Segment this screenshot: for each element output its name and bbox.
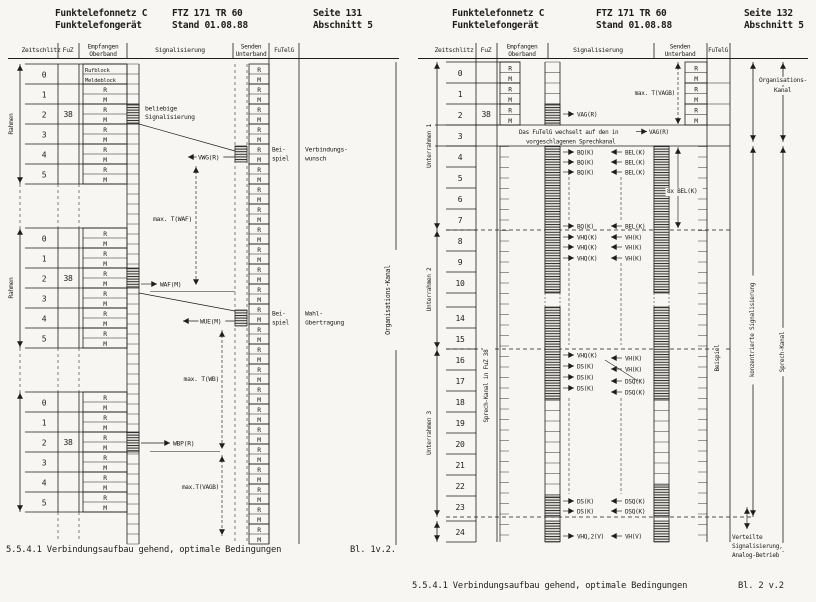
text-label: M	[257, 96, 261, 104]
timeslot-number: 15	[455, 335, 465, 344]
text-label: R	[508, 65, 512, 73]
arrowhead-icon	[675, 222, 681, 228]
timeslot-number: 0	[42, 399, 47, 408]
figure-caption: 5.5.4.1 Verbindungsaufbau gehend, optima…	[412, 581, 687, 591]
arrowhead-icon	[219, 529, 225, 535]
text-label: FuZ	[63, 46, 74, 54]
timeslot-number: 4	[42, 315, 47, 324]
text-label: M	[257, 316, 261, 324]
signal-label: VH(K)	[625, 234, 642, 241]
channel-label: Organisations-	[759, 77, 807, 84]
vag-block	[545, 104, 560, 125]
text-label: Verbindungs-	[305, 146, 348, 154]
page-number: Seite 132	[744, 8, 804, 20]
text-label: R	[103, 394, 107, 402]
text-label: M	[103, 96, 107, 104]
timeslot-number: 5	[42, 171, 47, 180]
arrowhead-icon	[750, 147, 756, 153]
signal-label: VHQ(K)	[577, 244, 597, 251]
signal-block	[545, 146, 560, 293]
text-label: R	[103, 146, 107, 154]
arrowhead-icon	[568, 508, 574, 514]
arrowhead-icon	[193, 279, 199, 285]
signal-label: VAG(R)	[577, 111, 597, 118]
timeslot-number: 3	[42, 295, 47, 304]
signal-label: VHQ(K)	[577, 255, 597, 262]
signal-label: BEL(K)	[625, 149, 645, 156]
arrowhead-icon	[434, 535, 440, 541]
text-label: M	[257, 196, 261, 204]
text-label: M	[257, 116, 261, 124]
signal-label: BQ(K)	[577, 169, 594, 176]
text-label: R	[103, 166, 107, 174]
timeslot-number: 18	[455, 398, 465, 407]
text-label: R	[257, 286, 261, 294]
text-label: R	[257, 246, 261, 254]
text-label: M	[508, 117, 512, 125]
signal-label-wbp: WBP(R)	[173, 440, 194, 448]
arrowhead-icon	[675, 63, 681, 69]
text-label: R	[103, 126, 107, 134]
timeslot-number: 22	[455, 482, 465, 491]
timing-diagram-page-132: ZeitschlitzFuZEmpfangenOberbandSignalisi…	[408, 0, 816, 602]
text-label: M	[257, 396, 261, 404]
text-label: spiel	[272, 156, 289, 163]
subframe-label: Unterrahmen 3	[426, 410, 433, 454]
text-label: R	[257, 206, 261, 214]
arrowhead-icon	[183, 318, 189, 324]
text-label: R	[257, 326, 261, 334]
timeslot-number: 1	[458, 90, 463, 99]
text-label: M	[103, 136, 107, 144]
timeslot-number: 20	[455, 440, 465, 449]
signal-block	[654, 146, 669, 293]
text-label: M	[257, 276, 261, 284]
text-label: Empfangen	[507, 44, 538, 51]
arrowhead-icon	[744, 508, 750, 514]
document-title: Funktelefonnetz CFunktelefongerät	[55, 8, 147, 31]
signal-label: DSQ(K)	[625, 498, 645, 505]
panel-page-132: ZeitschlitzFuZEmpfangenOberbandSignalisi…	[408, 0, 816, 602]
text-label: Senden	[241, 44, 262, 51]
arrowhead-icon	[17, 393, 23, 399]
text-label: M	[103, 404, 107, 412]
signal-label: VH(K)	[625, 366, 642, 373]
arrowhead-icon	[750, 135, 756, 141]
text-label: R	[257, 146, 261, 154]
signal-block	[545, 521, 560, 542]
arrowhead-icon	[750, 63, 756, 69]
text-label: M	[103, 240, 107, 248]
arrowhead-icon	[568, 533, 574, 539]
frame-label: Rahmen	[8, 113, 15, 134]
timeslot-number: 1	[42, 255, 47, 264]
arrowhead-icon	[675, 148, 681, 154]
text-label: R	[103, 494, 107, 502]
panel-page-131: ZeitschlitzFuZEmpfangenOberbandSignalisi…	[0, 0, 408, 602]
document-title: Funktelefonnetz CFunktelefongerät	[452, 8, 544, 31]
signal-label: VH(K)	[625, 244, 642, 251]
example-label: Beispiel	[714, 344, 721, 372]
timeslot-number: 3	[42, 459, 47, 468]
text-label: Signalisierung	[155, 46, 205, 54]
text-label: R	[257, 66, 261, 74]
channel-label: Organisations-Kanal	[384, 265, 392, 335]
arrowhead-icon	[17, 341, 23, 347]
text-label: Bei-	[272, 147, 285, 154]
distributed-signalling-label: Analog-Betrieb	[732, 552, 780, 559]
arrowhead-icon	[750, 510, 756, 516]
text-label: M	[103, 504, 107, 512]
text-label: M	[257, 356, 261, 364]
timeslot-number: 3	[458, 132, 463, 141]
text-label: R	[103, 310, 107, 318]
text-label: M	[103, 464, 107, 472]
text-label: M	[257, 516, 261, 524]
repeat-count-label: 8x BEL(K)	[667, 188, 697, 195]
text-label: M	[103, 484, 107, 492]
timing-diagram-page-131: ZeitschlitzFuZEmpfangenOberbandSignalisi…	[0, 0, 408, 602]
text-label: M	[694, 117, 698, 125]
distributed-signalling-label: Signalisierung,	[732, 543, 783, 550]
text-label: Signalisierung	[573, 46, 623, 54]
text-label: M	[257, 256, 261, 264]
timer-label: max. T(WB)	[184, 375, 219, 383]
text-label: FuTelG	[708, 47, 729, 54]
text-label: R	[694, 107, 698, 115]
spec-reference: FTZ 171 TR 60Stand 01.08.88	[172, 8, 248, 31]
message-block-label: Meldeblock	[85, 78, 117, 84]
timeslot-number: 10	[455, 279, 465, 288]
text-label: M	[257, 76, 261, 84]
text-label: R	[257, 426, 261, 434]
timeslot-number: 2	[42, 275, 47, 284]
arrowhead-icon	[434, 223, 440, 229]
figure-caption: 5.5.4.1 Verbindungsaufbau gehend, optima…	[6, 545, 281, 555]
text-label: M	[103, 176, 107, 184]
text-label: M	[103, 444, 107, 452]
signal-label-wue: WUE(M)	[200, 318, 221, 326]
signal-label: DS(K)	[577, 498, 594, 505]
arrowhead-icon	[568, 111, 574, 117]
waf-block	[127, 268, 139, 288]
timeslot-number: 7	[458, 216, 463, 225]
timeslot-number: 4	[42, 151, 47, 160]
device-name: Funktelefongerät	[452, 20, 544, 32]
text-label: M	[103, 320, 107, 328]
text-label: beliebige	[145, 105, 177, 113]
call-block-label: Rufblock	[85, 68, 110, 74]
text-label: M	[257, 456, 261, 464]
arrowhead-icon	[434, 63, 440, 69]
spec-date: Stand 01.08.88	[172, 20, 248, 32]
signal-label: VHQ,2(V)	[577, 533, 604, 540]
signal-label: DS(K)	[577, 508, 594, 515]
arrowhead-icon	[434, 231, 440, 237]
text-label: Oberband	[89, 51, 117, 58]
text-label: R	[257, 186, 261, 194]
timeslot-number: 1	[42, 419, 47, 428]
timeslot-number: 4	[458, 153, 463, 162]
page-reference: Seite 131Abschnitt 5	[313, 8, 373, 31]
arrowhead-icon	[780, 135, 786, 141]
arrowhead-icon	[434, 522, 440, 528]
signal-label: VHQ(K)	[577, 352, 597, 359]
text-label: M	[257, 156, 261, 164]
text-label: M	[103, 260, 107, 268]
timeslot-number: 21	[455, 461, 465, 470]
signal-label: BQ(K)	[577, 223, 594, 230]
subframe-label: Unterrahmen 1	[426, 123, 433, 167]
timeslot-number: 3	[42, 131, 47, 140]
text-label: M	[257, 476, 261, 484]
arrowhead-icon	[151, 281, 157, 287]
text-label: R	[257, 266, 261, 274]
text-label: R	[257, 106, 261, 114]
text-label: Senden	[670, 44, 691, 51]
text-label: R	[257, 526, 261, 534]
text-label: M	[257, 296, 261, 304]
arrowhead-icon	[568, 149, 574, 155]
timeslot-number: 5	[458, 174, 463, 183]
arrowhead-icon	[568, 352, 574, 358]
text-label: R	[694, 86, 698, 94]
distributed-signalling-label: Verteilte	[732, 534, 763, 541]
arrowhead-icon	[568, 363, 574, 369]
text-label: Wahl-	[305, 310, 323, 318]
text-label: R	[103, 474, 107, 482]
spec-number: FTZ 171 TR 60	[596, 8, 672, 20]
arrowhead-icon	[568, 255, 574, 261]
arrowhead-icon	[568, 244, 574, 250]
signal-block	[654, 307, 669, 400]
timeslot-number: 19	[455, 419, 465, 428]
text-label: Signalisierung	[145, 113, 195, 121]
text-label: R	[103, 106, 107, 114]
signal-block	[545, 307, 560, 400]
timer-label: max. T(WAF)	[153, 215, 192, 223]
timeslot-number: 2	[42, 439, 47, 448]
text-label: Zeitschlitz	[21, 46, 60, 54]
text-label: R	[257, 466, 261, 474]
signal-label: BEL(K)	[625, 159, 645, 166]
text-label: Oberband	[508, 51, 536, 58]
text-label: M	[508, 75, 512, 83]
text-label: M	[257, 176, 261, 184]
timeslot-number: 4	[42, 479, 47, 488]
arrowhead-icon	[219, 331, 225, 337]
wue-block	[235, 310, 247, 326]
fuz-channel-number: 38	[481, 110, 491, 119]
signal-label: DSQ(K)	[625, 508, 645, 515]
signal-label: VH(V)	[625, 533, 642, 540]
text-label: R	[257, 506, 261, 514]
handover-note: Das FuTelG wechselt auf den in	[519, 129, 619, 136]
text-label: M	[257, 136, 261, 144]
signal-block	[654, 485, 669, 517]
text-label: R	[257, 306, 261, 314]
signal-label: VH(K)	[625, 355, 642, 362]
text-label: R	[257, 346, 261, 354]
text-label: M	[257, 496, 261, 504]
text-label: M	[103, 424, 107, 432]
fuz-channel-number: 38	[63, 110, 73, 119]
timeslot-number: 8	[458, 237, 463, 246]
fuz-channel-number: 38	[63, 274, 73, 283]
signal-label: BQ(K)	[577, 159, 594, 166]
channel-label: Sprech-Kanal	[779, 331, 786, 372]
text-label: M	[257, 216, 261, 224]
channel-label: konzentrierte Signalisierung	[749, 282, 756, 377]
text-label: M	[694, 96, 698, 104]
relation-line	[139, 293, 235, 311]
timer-label: max. T(VAGB)	[635, 90, 675, 97]
arrowhead-icon	[17, 229, 23, 235]
text-label: R	[103, 414, 107, 422]
arrowhead-icon	[17, 177, 23, 183]
arrowhead-icon	[568, 159, 574, 165]
text-label: M	[257, 336, 261, 344]
arrowhead-icon	[193, 167, 199, 173]
network-name: Funktelefonnetz C	[452, 8, 544, 20]
arrowhead-icon	[780, 147, 786, 153]
arrowhead-icon	[568, 385, 574, 391]
signal-label-vwg: VWG(R)	[198, 154, 219, 162]
relation-line	[139, 124, 235, 151]
sheet-label: Bl. 1v.2.	[350, 545, 396, 555]
page-number: Seite 131	[313, 8, 373, 20]
arrowhead-icon	[164, 440, 170, 446]
text-label: wunsch	[305, 155, 327, 163]
arrowhead-icon	[219, 443, 225, 449]
signal-label: DS(K)	[577, 374, 594, 381]
text-label: M	[103, 156, 107, 164]
text-label: Zeitschlitz	[434, 46, 473, 54]
timeslot-number: 0	[458, 69, 463, 78]
text-label: R	[257, 126, 261, 134]
arrowhead-icon	[568, 169, 574, 175]
text-label: M	[257, 376, 261, 384]
text-label: R	[103, 454, 107, 462]
signal-label: DS(K)	[577, 385, 594, 392]
text-label: M	[103, 280, 107, 288]
text-label: R	[257, 366, 261, 374]
text-label: FuTelG	[274, 47, 295, 54]
speech-channel-note: Sprech-Kanal in FuZ 38	[483, 349, 490, 423]
frame-label: Rahmen	[8, 277, 15, 298]
arrowhead-icon	[744, 523, 750, 529]
text-label: R	[257, 446, 261, 454]
signal-label: DSQ(K)	[625, 389, 645, 396]
text-label: Bei-	[272, 311, 285, 318]
arrowhead-icon	[675, 118, 681, 124]
text-label: M	[257, 236, 261, 244]
text-label: R	[508, 86, 512, 94]
vwg-block	[235, 146, 247, 162]
timeslot-number: 24	[455, 528, 465, 537]
signal-label: BQ(K)	[577, 149, 594, 156]
signal-label: BEL(K)	[625, 223, 645, 230]
timeslot-number: 0	[42, 71, 47, 80]
timeslot-number: 2	[42, 111, 47, 120]
arrowhead-icon	[434, 350, 440, 356]
text-label: R	[257, 166, 261, 174]
timeslot-number: 5	[42, 335, 47, 344]
signal-label: DS(K)	[577, 363, 594, 370]
text-label: R	[103, 330, 107, 338]
text-label: R	[257, 406, 261, 414]
arrowhead-icon	[434, 510, 440, 516]
spec-reference: FTZ 171 TR 60Stand 01.08.88	[596, 8, 672, 31]
timeslot-number: 2	[458, 111, 463, 120]
text-label: R	[508, 107, 512, 115]
text-label: R	[103, 290, 107, 298]
text-label: R	[103, 270, 107, 278]
subframe-label: Unterrahmen 2	[426, 267, 433, 311]
timeslot-number: 1	[42, 91, 47, 100]
timeslot-number: 17	[455, 377, 465, 386]
timer-label: max.T(VAGB)	[182, 484, 219, 491]
signal-label-waf: WAF(M)	[160, 281, 181, 289]
spec-date: Stand 01.08.88	[596, 20, 672, 32]
channel-label: Kanal	[774, 87, 792, 94]
text-label: M	[103, 300, 107, 308]
section-number: Abschnitt 5	[313, 20, 373, 32]
signal-label: VHQ(K)	[577, 234, 597, 241]
text-label: M	[508, 96, 512, 104]
text-label: spiel	[272, 320, 289, 327]
timeslot-number: 5	[42, 499, 47, 508]
text-label: R	[694, 65, 698, 73]
timeslot-number: 9	[458, 258, 463, 267]
signal-block	[545, 496, 560, 517]
text-label: übertragung	[305, 319, 344, 327]
text-label: R	[257, 486, 261, 494]
text-label: Unterband	[665, 51, 696, 58]
arrowhead-icon	[780, 63, 786, 69]
arrowhead-icon	[434, 342, 440, 348]
signal-label: VH(K)	[625, 255, 642, 262]
arrowhead-icon	[568, 223, 574, 229]
sheet-label: Bl. 2 v.2	[738, 581, 784, 591]
scanned-spec-sheet: ZeitschlitzFuZEmpfangenOberbandSignalisi…	[0, 0, 816, 602]
signal-block	[654, 521, 669, 542]
fuz-channel-number: 38	[63, 438, 73, 447]
text-label: M	[257, 436, 261, 444]
signal-label: BEL(K)	[625, 169, 645, 176]
device-name: Funktelefongerät	[55, 20, 147, 32]
signal-label: VAG(R)	[649, 129, 669, 136]
arrowhead-icon	[568, 234, 574, 240]
text-label: R	[103, 230, 107, 238]
section-number: Abschnitt 5	[744, 20, 804, 32]
text-label: R	[103, 250, 107, 258]
arrowhead-icon	[219, 456, 225, 462]
arrowhead-icon	[641, 129, 647, 135]
arrowhead-icon	[568, 498, 574, 504]
text-label: R	[103, 86, 107, 94]
handover-note: vorgeschlagenen Sprechkanal	[526, 139, 616, 146]
timeslot-number: 16	[455, 356, 465, 365]
text-label: M	[257, 416, 261, 424]
timeslot-number: 14	[455, 314, 465, 323]
text-label: M	[257, 536, 261, 544]
text-label: M	[103, 116, 107, 124]
text-label: M	[103, 340, 107, 348]
text-label: R	[257, 86, 261, 94]
text-label: R	[257, 226, 261, 234]
page-reference: Seite 132Abschnitt 5	[744, 8, 804, 31]
